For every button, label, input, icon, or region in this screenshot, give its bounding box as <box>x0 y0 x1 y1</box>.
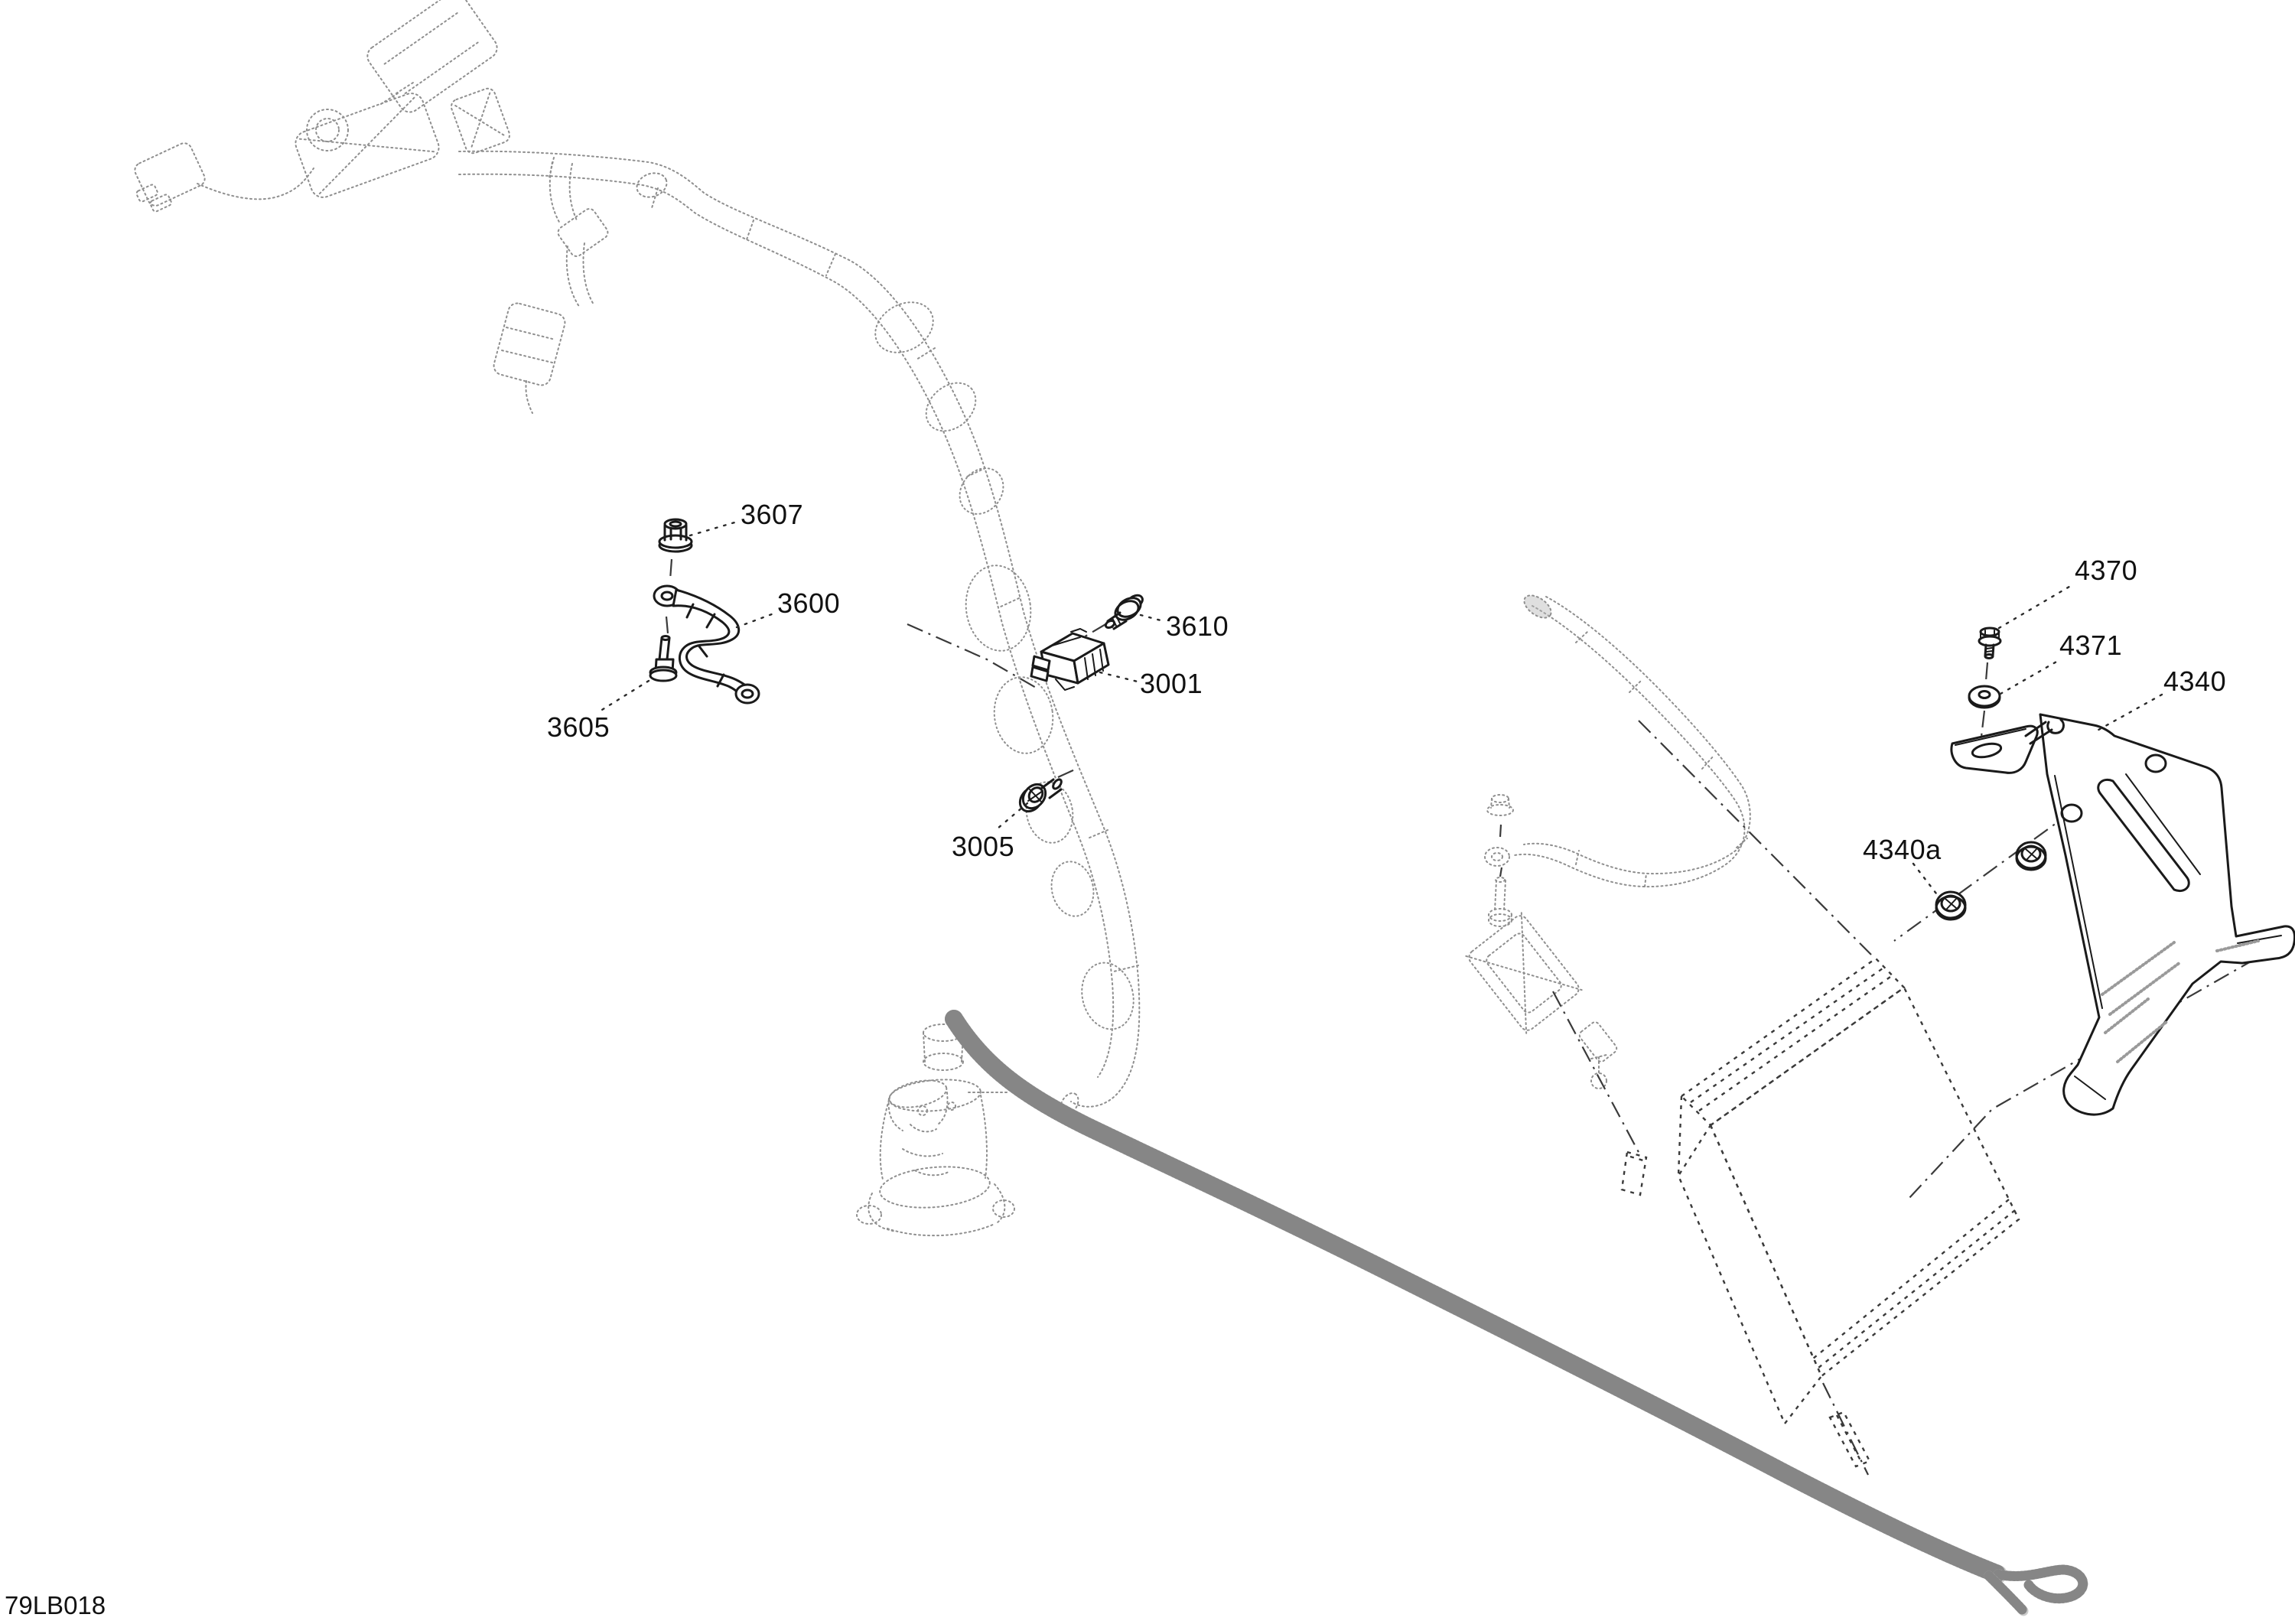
wiring-harness-reference <box>132 0 1750 1235</box>
diagram-artwork <box>0 0 2295 1624</box>
callout-3005: 3005 <box>952 831 1014 863</box>
part-4371-washer <box>1969 686 2000 708</box>
grommet-1 <box>1936 892 1965 919</box>
callout-4371: 4371 <box>2059 630 2122 662</box>
harness-connector-cluster <box>132 0 512 213</box>
ground-cable-run-reference <box>954 1019 2083 1611</box>
part-4340-battery-bracket <box>1952 714 2295 1115</box>
part-4340a-grommets <box>1936 842 2046 919</box>
callout-3605: 3605 <box>547 711 610 744</box>
solid-parts <box>650 519 2295 1115</box>
part-3610-bolt <box>1105 593 1144 629</box>
callout-3607: 3607 <box>741 499 803 531</box>
part-3005-bolt <box>1015 778 1063 815</box>
parts-diagram-page: 3607 3600 3605 3610 3001 3005 4370 4371 … <box>0 0 2295 1624</box>
construction-lines <box>666 559 2256 1475</box>
callout-4340a: 4340a <box>1863 834 1942 866</box>
part-4370-bolt <box>1979 628 2000 659</box>
callout-3600: 3600 <box>777 587 840 620</box>
part-3605-bolt <box>650 636 676 682</box>
part-3607-flange-nut <box>659 519 692 552</box>
figure-code: 79LB018 <box>5 1591 106 1620</box>
callout-4340: 4340 <box>2163 666 2226 698</box>
callout-3610: 3610 <box>1166 610 1229 643</box>
battery-outline <box>1622 958 2019 1466</box>
callout-3001: 3001 <box>1140 668 1203 700</box>
callout-4370: 4370 <box>2075 555 2137 587</box>
grommet-2 <box>2017 842 2046 870</box>
battery-positive-cable-reference <box>1466 591 1750 1089</box>
part-3001-module <box>1031 629 1108 690</box>
